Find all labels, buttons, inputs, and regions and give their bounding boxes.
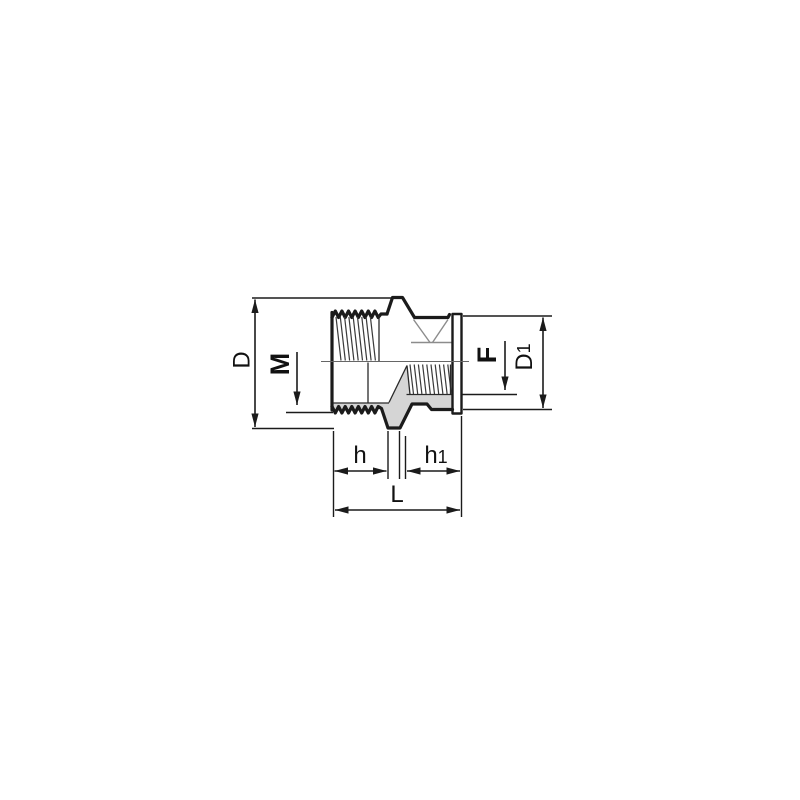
dimension-h-label: h (353, 442, 366, 469)
end-face-rim (453, 314, 462, 414)
dimension-F: F (461, 341, 517, 395)
flange (387, 298, 450, 318)
female-thread-hatch (410, 365, 451, 395)
dimension-D-label: D (229, 351, 256, 368)
male-thread-hatch (336, 317, 375, 361)
technical-drawing: D M F D1 h (0, 0, 800, 800)
hex-chamfer-left (414, 320, 431, 343)
flange-top-outline (387, 298, 450, 318)
dimension-D1-label: D1 (511, 343, 538, 370)
dimension-h1: h1 (407, 442, 460, 471)
hex-chamfer-right (433, 320, 449, 343)
dimension-F-label: F (472, 347, 502, 364)
dimension-h1-label: h1 (424, 442, 447, 469)
dimension-L-label: L (390, 481, 403, 508)
fitting-part-view (321, 298, 469, 429)
dimension-M-label: M (265, 353, 295, 376)
dimension-h: h (335, 431, 406, 479)
drawing-page: D M F D1 h (0, 0, 800, 800)
